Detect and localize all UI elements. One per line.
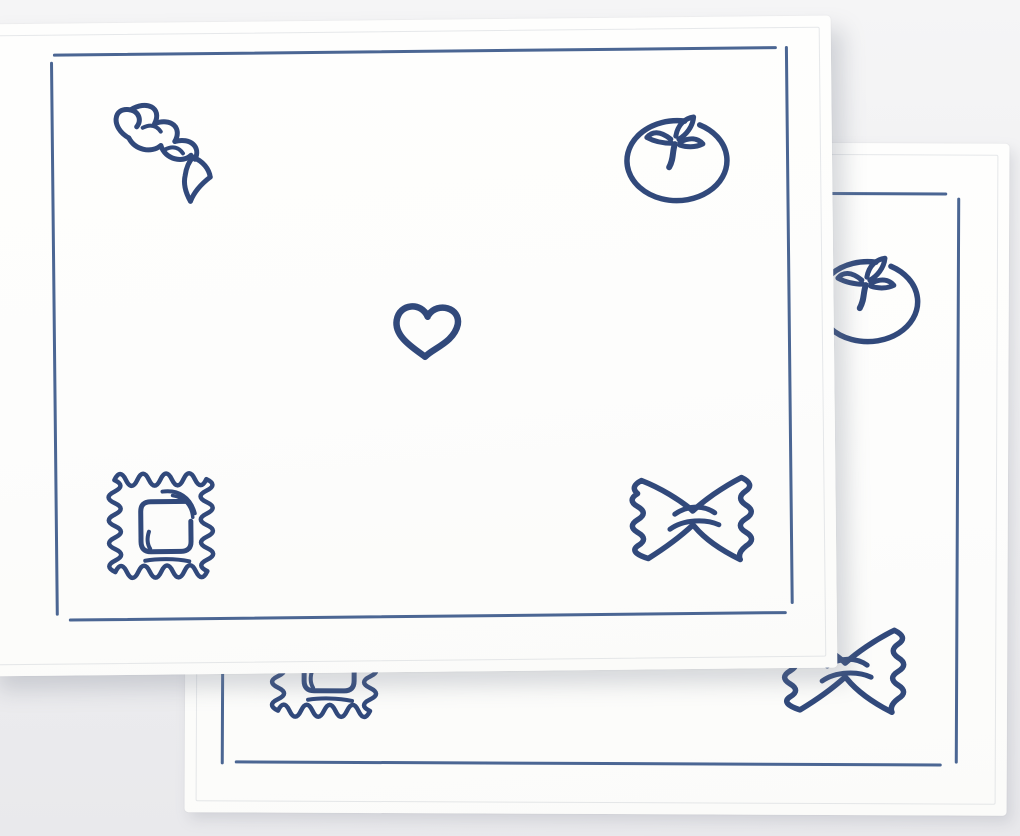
border-stitch-top <box>53 46 777 57</box>
fusilli-motif <box>92 95 215 228</box>
heart-motif <box>387 295 464 364</box>
border-stitch-right <box>955 198 960 764</box>
farfalle-motif <box>617 465 766 577</box>
product-photo <box>0 0 1020 836</box>
border-stitch-left <box>50 62 59 616</box>
front-placemat <box>0 16 837 677</box>
border-stitch-bottom <box>69 611 787 622</box>
border-stitch-bottom <box>235 760 942 766</box>
border-stitch-right <box>785 46 794 604</box>
ravioli-motif <box>98 459 223 584</box>
tomato-motif <box>616 106 735 205</box>
